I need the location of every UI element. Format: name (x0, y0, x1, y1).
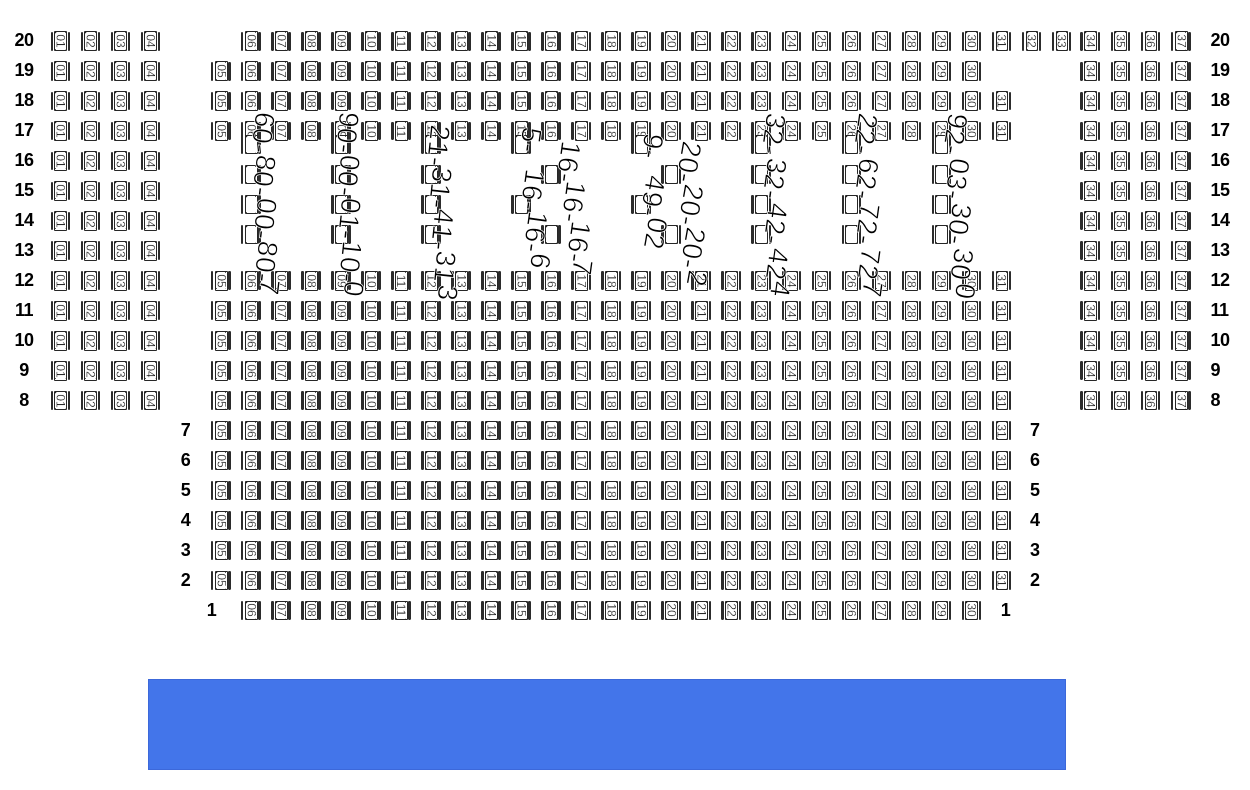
svg-text:3: 3 (431, 283, 464, 302)
svg-text:4: 4 (764, 279, 797, 299)
svg-text:7: 7 (856, 279, 889, 299)
svg-text:49-: 49- (634, 173, 672, 220)
svg-text:42: 42 (760, 246, 795, 282)
svg-text:00-: 00- (331, 153, 366, 198)
svg-text:21-: 21- (421, 123, 456, 168)
svg-text:80-: 80- (246, 153, 282, 198)
svg-text:16-: 16- (555, 179, 592, 225)
svg-text:72: 72 (852, 246, 887, 282)
svg-text:2: 2 (680, 268, 713, 289)
svg-text:31: 31 (428, 249, 462, 284)
svg-text:32-: 32- (755, 111, 792, 157)
svg-text:16-: 16- (517, 209, 554, 255)
svg-text:31-: 31- (423, 165, 458, 210)
svg-text:0: 0 (337, 279, 370, 298)
svg-text:92-: 92- (937, 111, 974, 157)
svg-text:01-: 01- (332, 196, 367, 241)
svg-text:72-: 72- (849, 201, 886, 247)
svg-text:5-: 5- (513, 125, 547, 155)
svg-text:90-: 90- (330, 110, 365, 155)
svg-text:16-: 16- (550, 139, 587, 185)
svg-text:0: 0 (949, 281, 982, 302)
svg-text:03-: 03- (939, 156, 976, 202)
svg-text:20-: 20- (670, 139, 708, 186)
svg-text:9-: 9- (635, 131, 670, 162)
svg-text:30-: 30- (941, 201, 978, 247)
svg-text:62-: 62- (848, 156, 885, 202)
svg-text:22-: 22- (847, 111, 884, 157)
svg-text:41-: 41- (425, 207, 460, 252)
svg-text:10-: 10- (333, 239, 368, 284)
svg-text:60-: 60- (245, 110, 281, 155)
svg-text:6: 6 (524, 251, 557, 271)
svg-text:7: 7 (566, 257, 599, 277)
svg-text:42-: 42- (757, 201, 794, 247)
svg-text:16-: 16- (514, 167, 551, 213)
svg-text:32-: 32- (756, 156, 793, 202)
svg-text:7: 7 (253, 277, 286, 297)
svg-text:20-: 20- (672, 182, 710, 229)
svg-text:02: 02 (638, 215, 674, 252)
svg-text:00-: 00- (247, 196, 283, 241)
svg-text:30: 30 (944, 246, 980, 283)
svg-text:20-: 20- (674, 225, 712, 272)
